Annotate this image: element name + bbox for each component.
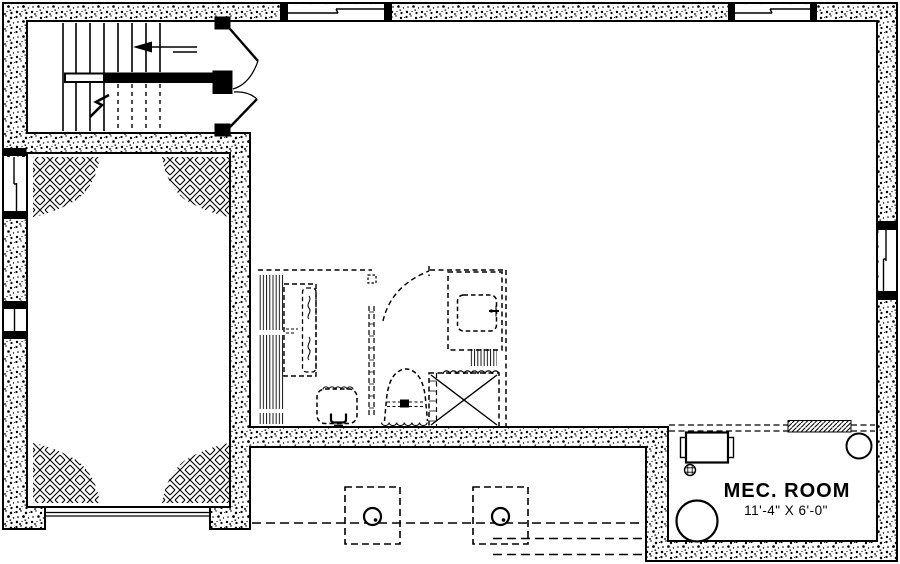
vanity-bowls <box>308 296 310 360</box>
pressure-tank <box>847 434 872 459</box>
door-leaf-lower <box>230 99 257 127</box>
closet-shelving <box>259 275 285 424</box>
shower <box>429 373 499 427</box>
garage-door-opening <box>46 508 211 531</box>
stair-treads-hidden <box>118 84 160 131</box>
window-right <box>879 230 897 291</box>
floor-drain <box>685 465 696 476</box>
columns-and-beams <box>252 487 644 555</box>
shower-x <box>431 375 497 425</box>
mech-beam-hatched <box>788 421 851 433</box>
pedestal-sink <box>317 387 357 426</box>
shower-hatch-strip <box>470 349 497 366</box>
floor-plan-drawing: MEC. ROOM 11'-4" X 6'-0" <box>0 0 900 564</box>
walls <box>2 2 898 562</box>
toilet <box>382 369 428 426</box>
steel-post-1 <box>364 508 381 525</box>
door-swing-upper <box>233 61 258 89</box>
double-entry-doors <box>213 17 259 137</box>
bathroom-door-swing <box>383 266 429 321</box>
mech-room: MEC. ROOM 11'-4" X 6'-0" <box>669 421 875 542</box>
door-leaf-upper <box>230 29 258 61</box>
stair-rail <box>104 73 222 84</box>
water-heater <box>677 501 718 542</box>
vanity-counter <box>284 284 316 376</box>
electrical-panel <box>681 433 734 463</box>
mech-room-label: MEC. ROOM <box>724 480 851 502</box>
bathroom-rough-in <box>258 266 506 429</box>
mech-room-dimensions: 11'-4" X 6'-0" <box>744 503 828 518</box>
plumbing-wall <box>369 306 374 415</box>
door-swing-lower <box>234 92 257 99</box>
steel-post-2 <box>492 508 509 525</box>
plumbing-wall-blocking <box>369 312 374 408</box>
vanity-faucet-marks <box>286 329 298 333</box>
corner-hatch-patches <box>33 157 229 503</box>
door-jamb-middle <box>213 71 233 95</box>
stair-direction-arrow <box>133 42 197 53</box>
basement-floor-plan: MEC. ROOM 11'-4" X 6'-0" <box>0 0 900 564</box>
bathroom-door-jamb <box>368 275 376 283</box>
wall-openings <box>4 5 896 532</box>
stair-break-mark <box>90 95 109 117</box>
wall-face-lines <box>3 3 897 561</box>
staircase <box>63 23 222 131</box>
stair-rail-cap <box>65 74 104 83</box>
laundry-tub <box>458 295 497 331</box>
door-jamb-bottom <box>215 124 231 137</box>
beam-lines-lower <box>493 539 644 555</box>
laundry-faucet <box>489 306 499 317</box>
door-jamb-top <box>215 17 231 30</box>
window-details <box>4 4 897 339</box>
